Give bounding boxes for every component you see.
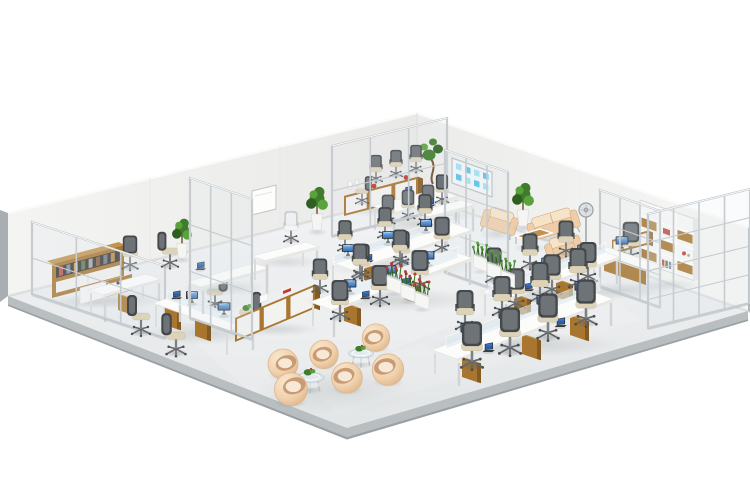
task-chair <box>329 280 351 322</box>
task-chair <box>573 279 598 328</box>
task-chair <box>459 321 485 371</box>
task-chair <box>535 293 560 342</box>
glass-wall-center <box>190 178 252 340</box>
wall-whiteboard <box>252 185 276 215</box>
task-chair <box>391 230 410 266</box>
tub-chair <box>310 340 339 370</box>
task-chair <box>311 259 330 295</box>
task-chair <box>497 307 523 357</box>
guest-chair <box>282 211 299 244</box>
task-chair <box>351 244 370 280</box>
tub-chair <box>362 324 390 353</box>
office-render <box>0 0 750 500</box>
isometric-office-scene <box>0 0 750 500</box>
tub-chair <box>372 354 404 388</box>
task-chair <box>432 217 452 255</box>
tub-chair <box>275 373 308 408</box>
glass-wall-right-office-front <box>648 189 750 329</box>
tub-chair <box>331 363 362 396</box>
